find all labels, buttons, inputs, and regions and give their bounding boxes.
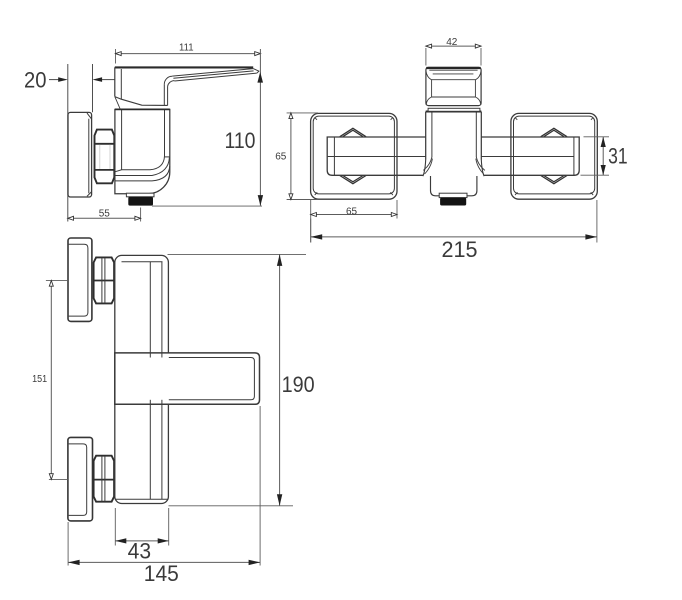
svg-text:43: 43 [128, 539, 152, 564]
svg-text:55: 55 [99, 209, 111, 220]
svg-text:111: 111 [179, 43, 194, 54]
svg-text:151: 151 [32, 374, 47, 385]
svg-text:20: 20 [24, 68, 47, 93]
svg-text:110: 110 [225, 128, 256, 153]
svg-text:65: 65 [346, 206, 358, 217]
svg-text:31: 31 [608, 144, 628, 169]
svg-text:145: 145 [144, 561, 179, 586]
svg-text:65: 65 [275, 151, 287, 162]
svg-text:215: 215 [442, 237, 478, 262]
svg-text:190: 190 [282, 372, 315, 397]
